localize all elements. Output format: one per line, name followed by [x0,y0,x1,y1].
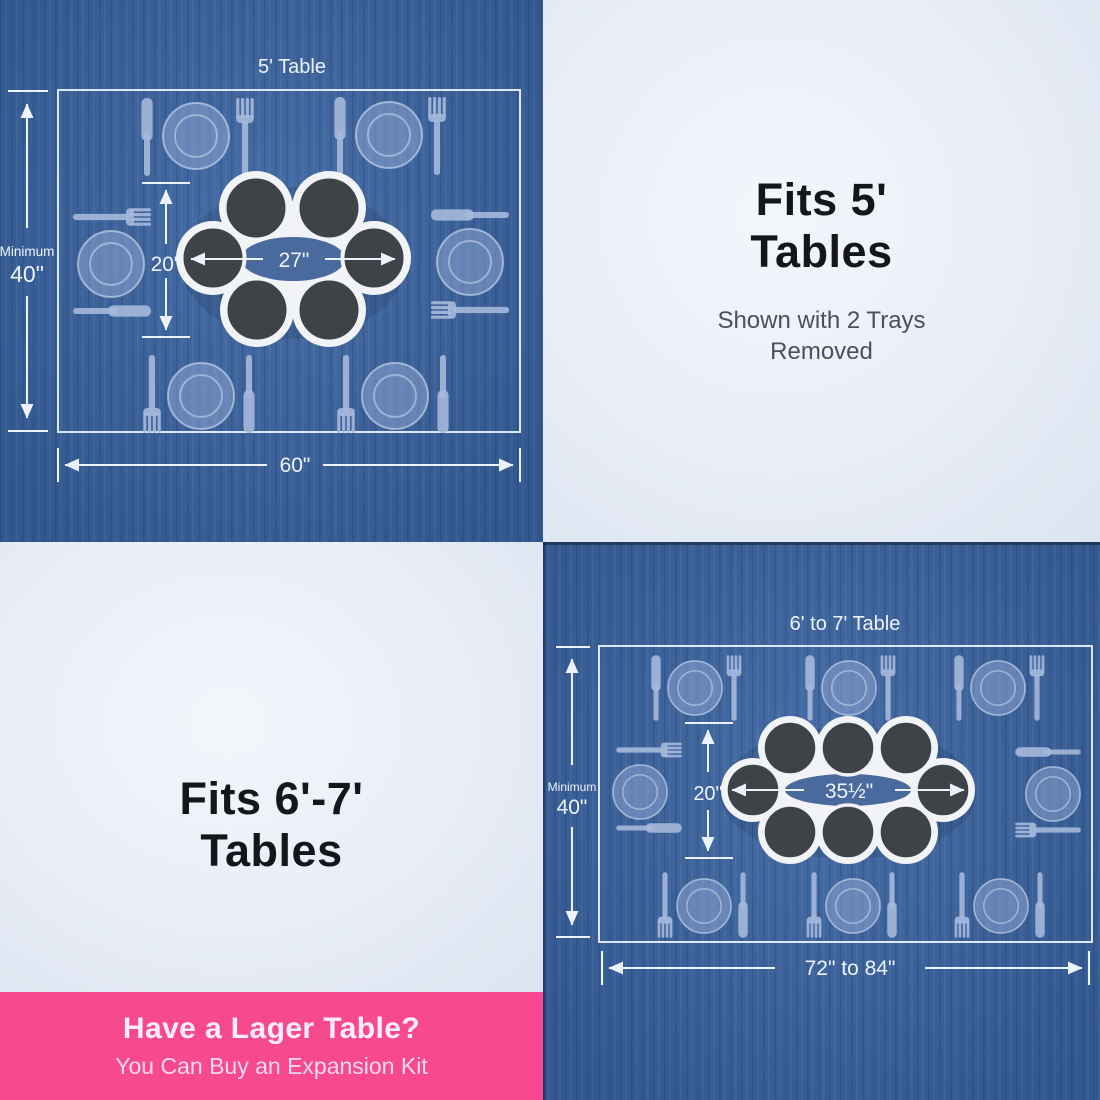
place-setting-bottom-left [143,355,254,433]
minimum-value-5ft: 40" [10,261,44,287]
panel-5ft-diagram: 5' Table Minimum 40" [0,0,543,542]
tray [298,279,361,342]
tray [821,721,875,775]
turntable-depth-label-5ft: 20" [151,253,182,276]
banner-subtitle: You Can Buy an Expansion Kit [115,1053,427,1080]
place-setting-top-right [334,97,445,175]
place-setting-bottom-1 [658,872,748,938]
six-seven-ft-table-size-label: 6' to 7' Table [790,613,901,635]
minimum-label-5ft: Minimum [0,244,54,259]
minimum-value-67ft: 40" [557,796,588,819]
turntable-width-label-5ft: 27" [279,249,310,272]
tray [298,177,361,240]
panel-left-edge [543,542,546,1100]
tray [226,279,289,342]
fits-5ft-heading: Fits 5' Tables [750,174,892,278]
place-setting-left [613,743,682,833]
tray [821,805,875,859]
panel-fits-5ft-callout: Fits 5' Tables Shown with 2 Trays Remove… [543,0,1100,542]
five-ft-diagram-svg: 5' Table Minimum 40" [0,0,543,542]
expansion-kit-banner: Have a Lager Table? You Can Buy an Expan… [0,992,543,1100]
place-setting-top-1 [651,655,741,721]
minimum-depth-dimension-67ft: Minimum 40" [548,647,597,937]
table-width-label-5ft: 60" [280,454,311,477]
fits-5ft-subtitle: Shown with 2 Trays Removed [717,305,925,368]
six-seven-ft-diagram-svg: 6' to 7' Table Minimum 40" [543,542,1100,1100]
banner-heading: Have a Lager Table? [123,1012,420,1046]
place-setting-right [431,209,509,318]
tray [879,721,933,775]
panel-fits-67ft-callout: Fits 6'-7' Tables [0,542,543,992]
table-fit-infographic: 5' Table Minimum 40" [0,0,1100,1100]
panel-67ft-diagram: 6' to 7' Table Minimum 40" [543,542,1100,1100]
tray [225,177,288,240]
place-setting-left [73,208,151,316]
five-ft-table-size-label: 5' Table [258,56,326,78]
place-setting-bottom-right [337,355,448,433]
turntable-depth-label-67ft: 20" [693,783,722,805]
tray [879,805,933,859]
table-width-label-67ft: 72" to 84" [805,957,896,980]
tray [763,805,817,859]
place-setting-top-2 [805,655,895,721]
table-width-dimension-5ft: 60" [58,448,520,482]
place-setting-right [1015,747,1081,837]
place-setting-bottom-2 [807,872,897,938]
tray [763,721,817,775]
fits-67ft-heading: Fits 6'-7' Tables [180,773,364,877]
panel-top-edge [543,542,1100,545]
place-setting-top-left [141,98,253,176]
place-setting-bottom-3 [955,872,1045,938]
table-width-dimension-67ft: 72" to 84" [602,951,1089,985]
turntable-width-label-67ft: 35½" [825,780,873,803]
place-setting-top-3 [954,655,1044,721]
minimum-label-67ft: Minimum [548,780,597,794]
minimum-depth-dimension-5ft: Minimum 40" [0,91,54,431]
